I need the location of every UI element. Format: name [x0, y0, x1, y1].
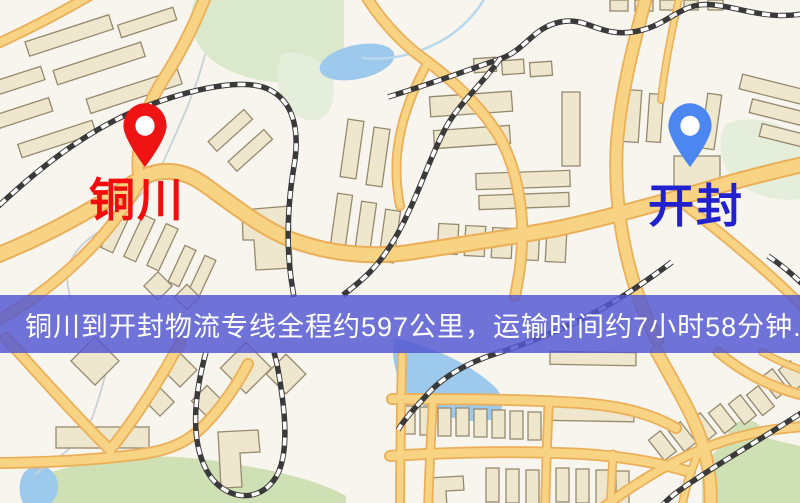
- origin-city-label: 铜川: [89, 174, 185, 226]
- destination-pin-icon[interactable]: [668, 103, 711, 167]
- route-info-banner: 铜川到开封物流专线全程约597公里，运输时间约7小时58分钟.: [0, 295, 800, 353]
- origin-pin-icon[interactable]: [123, 103, 166, 167]
- map-screenshot: 铜川 开封 铜川到开封物流专线全程约597公里，运输时间约7小时58分钟.: [0, 0, 800, 503]
- route-info-text: 铜川到开封物流专线全程约597公里，运输时间约7小时58分钟.: [25, 305, 800, 344]
- markers-overlay: 铜川 开封: [0, 0, 800, 503]
- destination-city-label: 开封: [648, 180, 744, 232]
